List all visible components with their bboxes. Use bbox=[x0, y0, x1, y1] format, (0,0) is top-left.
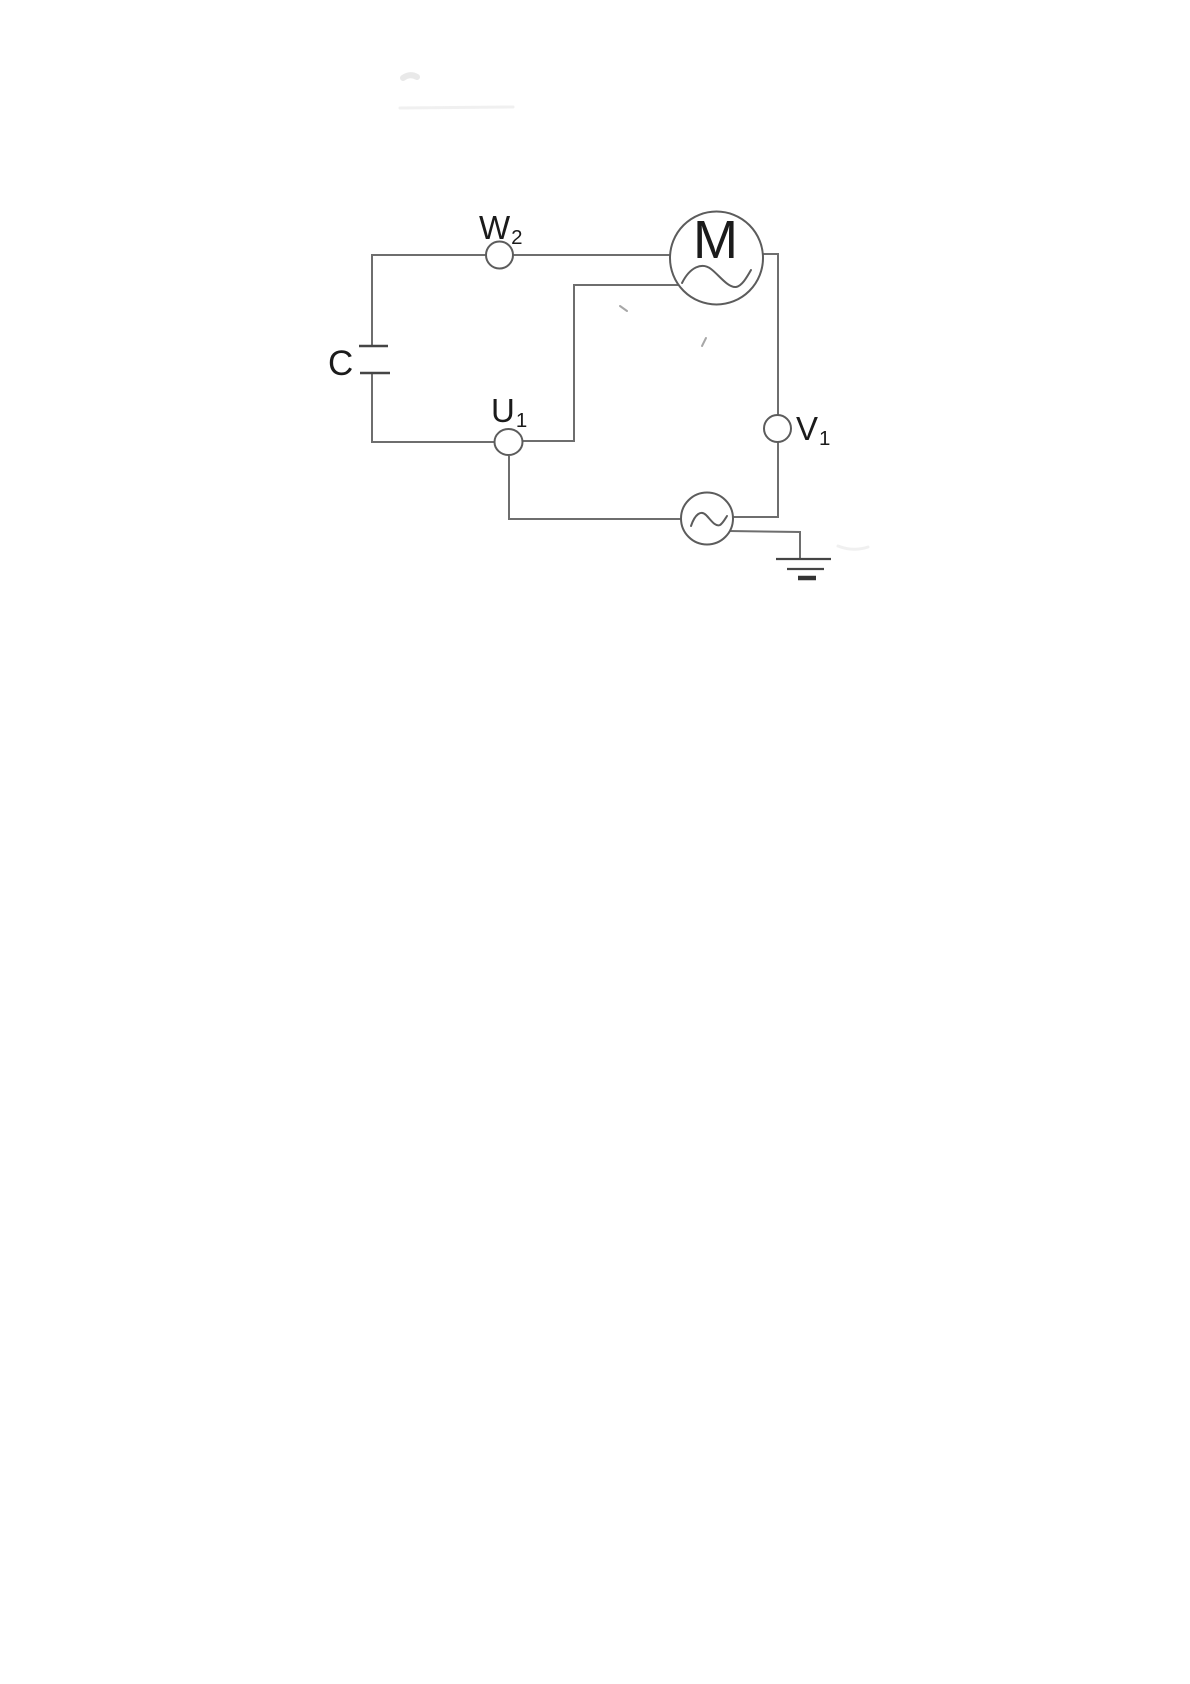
label-v1-subscript: 1 bbox=[819, 427, 830, 450]
scan-tick-mark bbox=[702, 338, 706, 346]
label-terminal-v1: V1 bbox=[796, 412, 830, 445]
terminal-u1 bbox=[495, 429, 523, 455]
wire-motor-to-v1 bbox=[763, 254, 778, 415]
scan-tick-mark bbox=[620, 306, 627, 311]
capacitor bbox=[359, 346, 390, 373]
label-motor-text: M bbox=[693, 210, 738, 270]
label-u1-subscript: 1 bbox=[516, 409, 527, 432]
scanned-document-page: C W2 U1 V1 M bbox=[0, 0, 1190, 1684]
earth-ground-icon bbox=[776, 559, 831, 578]
label-terminal-u1: U1 bbox=[491, 394, 527, 427]
wire-source-to-ground bbox=[729, 531, 800, 559]
scan-smudge bbox=[403, 75, 417, 78]
label-w2-base: W bbox=[479, 209, 510, 246]
ac-source bbox=[681, 493, 733, 545]
label-w2-subscript: 2 bbox=[511, 226, 522, 249]
label-motor: M bbox=[693, 213, 738, 267]
scan-arc bbox=[838, 546, 868, 549]
label-u1-base: U bbox=[491, 392, 515, 429]
wire-u1-to-source bbox=[509, 456, 681, 519]
circuit-diagram bbox=[0, 0, 1190, 1684]
wire-capacitor-to-u1 bbox=[372, 373, 494, 442]
wire-v1-to-source bbox=[733, 442, 778, 517]
label-capacitor: C bbox=[328, 346, 353, 381]
scan-streak bbox=[400, 107, 513, 108]
label-v1-base: V bbox=[796, 410, 818, 447]
label-capacitor-text: C bbox=[328, 344, 353, 383]
label-terminal-w2: W2 bbox=[479, 211, 523, 244]
scan-artifacts bbox=[400, 75, 868, 549]
wire-u1-to-motor bbox=[523, 285, 681, 441]
wire-capacitor-to-w2 bbox=[372, 255, 486, 346]
terminal-v1 bbox=[764, 415, 791, 442]
